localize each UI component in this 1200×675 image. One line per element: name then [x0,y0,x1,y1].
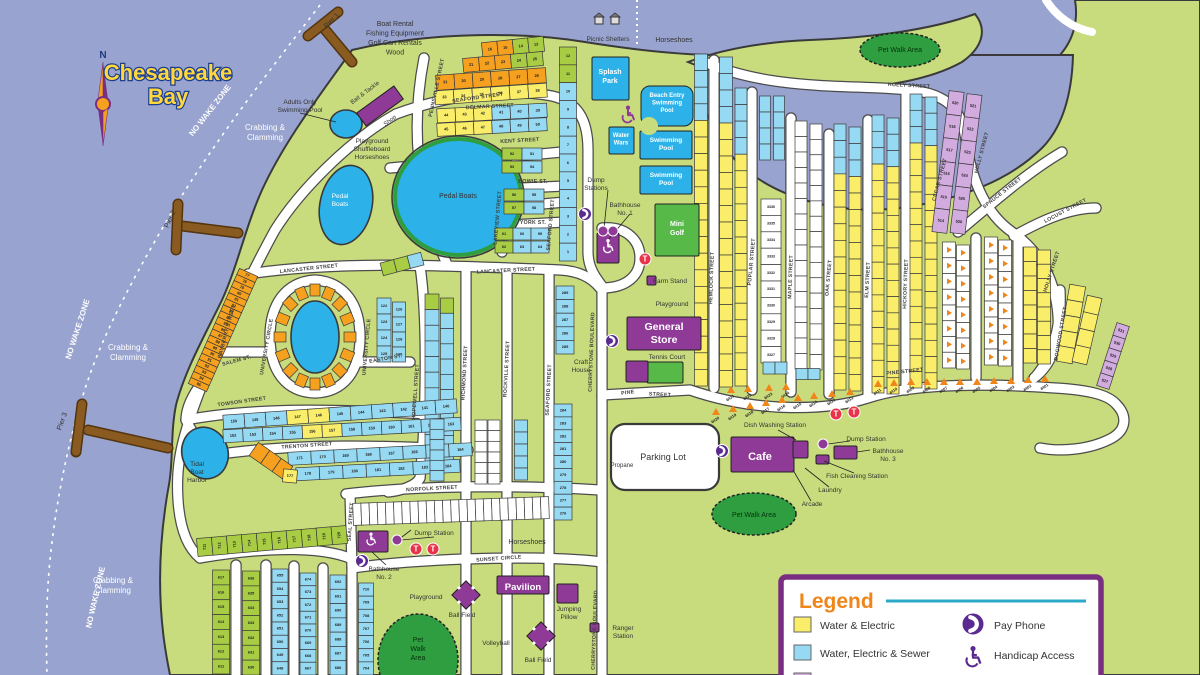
mini-golf: Mini [670,221,684,228]
site-number: 687 [335,651,342,656]
site-cell [810,216,822,231]
legend-item-label: Water & Electric [820,620,895,632]
site-cell [425,294,439,310]
site-cell [887,150,899,166]
legend: LegendWater & ElectricWater, Electric & … [781,577,1101,675]
site-cell [720,371,733,388]
site-number: 149 [252,417,260,422]
site-cell [735,88,747,105]
bathhouse-2: Bathhouse [368,566,399,573]
water-wars: Water [613,133,630,139]
site-number: 281 [560,446,567,451]
bathhouse-3-building [834,446,857,459]
playground-shuffleboard: Shuffleboard [354,146,391,153]
site-number: 652 [277,612,284,617]
site-cell [344,332,356,342]
site-cell [910,339,922,355]
site-cell [1024,305,1037,320]
site-cell [402,501,411,523]
site-cell [774,96,785,112]
site-cell [849,177,861,194]
site-cell [720,321,733,338]
site-cell [515,420,528,432]
dump-station-icon [392,535,402,545]
site-number: 40 [517,108,522,113]
site-number: 671 [305,615,312,620]
site-cell [720,57,733,74]
site-number: 277 [560,498,567,503]
site-cell [695,104,708,121]
site-cell [720,140,733,157]
site-number: 150 [230,418,237,423]
site-group: 289288287286285 [556,286,574,354]
site-number: 717 [291,536,297,543]
site-number: 673 [305,589,312,594]
site-cell [834,324,846,341]
site-group [834,124,846,390]
site-cell [925,357,937,373]
legend-title: Legend [799,590,874,613]
site-cell [887,248,899,264]
site-cell [735,287,747,304]
water-wars: Wars [614,141,629,147]
crabbing-1: Clamming [247,133,283,142]
site-number: 3330 [767,304,775,308]
site-cell [430,471,444,481]
site-cell [695,353,708,370]
site-number: 170 [319,454,326,459]
site-cell [735,369,747,386]
site-cell [310,378,320,390]
site-number: 3328 [767,336,775,340]
site-group: 5354 [502,161,542,173]
site-cell [887,215,899,231]
site-cell [910,208,922,224]
site-number: 282 [560,433,567,438]
site-number: 161 [408,423,416,428]
site-number: 184 [445,463,453,468]
swimming-pool-2: Pool [659,180,673,187]
mini-golf: Golf [670,230,685,237]
site-group: 626364 [495,241,549,253]
site-cell [695,170,708,187]
site-cell [441,344,454,359]
crabbing-3: Clamming [95,586,131,595]
site-cell [887,313,899,329]
site-cell [735,353,747,370]
site-cell [834,290,846,307]
site-number: 286 [562,331,569,336]
site-cell [925,259,937,275]
pet-walk-top: Pet Walk Area [878,47,922,54]
site-cell [849,342,861,359]
site-cell [849,144,861,161]
site-number: 284 [560,407,567,412]
site-cell [441,329,454,344]
site-number: 169 [342,453,350,458]
splash-park: Splash [599,69,622,76]
site-group [796,369,820,380]
site-cell [810,262,822,277]
site-cell [441,359,454,374]
site-cell [810,201,822,216]
site-cell [515,456,528,468]
site-cell [795,121,807,137]
site-cell [849,193,861,210]
site-cell [872,164,884,180]
street-label-street: STREET [649,391,672,398]
parking-lot: Parking Lot [640,452,686,462]
site-cell [810,247,822,262]
site-cell [910,176,922,192]
bathhouse-2-building [358,531,388,552]
site-number: 613 [218,634,225,639]
site-cell [426,501,435,523]
site-cell [1024,247,1037,262]
site-cell [849,358,861,375]
site-number: 50 [535,122,540,127]
site-cell [695,369,708,386]
site-cell [425,372,439,388]
site-number: 3332 [767,271,775,275]
site-cell [491,498,500,520]
site-number: 123 [381,319,388,324]
site-number: 668 [305,653,312,658]
site-group: 5758 [504,202,544,214]
jumping-pillow: Pillow [561,614,578,621]
site-cell [774,144,785,160]
bay-title: Chesapeake [104,60,232,85]
site-cell [925,340,937,356]
site-cell [385,502,394,524]
site-cell [810,155,822,170]
site-number: 3333 [767,254,775,258]
site-cell [720,74,733,91]
legend-swatch [794,645,811,660]
beach-entry-pool: Beach Entry [649,93,685,99]
site-cell [925,275,937,291]
site-group [957,245,970,369]
site-cell [695,137,708,154]
site-cell [695,54,708,71]
site-number: 160 [388,424,395,429]
site-number: 635 [248,590,255,595]
site-cell [1024,262,1037,277]
site-cell [795,245,807,261]
site-cell [887,167,899,183]
site-cell [834,141,846,158]
site-number: 690 [335,608,342,613]
site-cell [795,338,807,354]
pedal-boats-west: Boats [332,201,349,208]
site-cell [483,499,492,521]
site-number: 27 [516,74,521,79]
site-number: 704 [363,665,370,670]
site-cell [475,473,487,484]
dump-station-icon [818,439,828,449]
site-cell [760,144,771,160]
site-cell [695,286,708,303]
site-number: 710 [363,587,370,592]
ball-field-2: Ball Field [525,657,552,664]
site-cell [834,124,846,141]
site-cell [488,441,500,452]
site-cell [910,159,922,175]
site-cell [834,340,846,357]
site-cell [1038,321,1051,335]
site-number: 30 [461,78,466,83]
site-cell [430,440,444,450]
oval-pool [291,301,339,373]
site-cell [887,134,899,150]
site-cell [925,97,937,113]
site-number: 689 [335,622,342,627]
site-number: 126 [396,307,403,312]
site-cell [488,473,500,484]
site-number: 517 [946,147,953,153]
site-number: 164 [457,447,465,452]
site-number: 650 [277,639,284,644]
site-number: 57 [512,205,516,210]
playground-shuffleboard: Playground [356,138,389,145]
site-cell [925,292,937,308]
site-cell [887,264,899,280]
site-cell [925,113,937,129]
site-number: 672 [305,602,312,607]
site-cell [910,192,922,208]
site-number: 634 [248,605,255,610]
site-number: 168 [365,451,373,456]
site-cell [1038,250,1051,264]
site-cell [872,246,884,262]
site-cell [425,310,439,326]
site-cell [720,354,733,371]
site-cell [441,298,454,313]
site-number: 3334 [767,238,775,242]
site-group [872,115,884,393]
site-cell [925,129,937,145]
site-cell [872,115,884,131]
ranger-station: Station [613,633,634,640]
volleyball: Volleyball [482,640,510,647]
site-cell [910,323,922,339]
site-number: 148 [273,415,281,420]
site-number: 37 [517,89,522,94]
site-cell [849,127,861,144]
site-cell [872,328,884,344]
site-cell [451,500,460,522]
pet-walk-sw: Walk [410,646,426,653]
site-group [1024,247,1037,363]
site-cell [695,270,708,287]
site-group [735,88,747,386]
site-cell [795,137,807,153]
site-cell [834,257,846,274]
site-cell [720,255,733,272]
site-number: 183 [421,464,429,469]
site-cell [795,323,807,339]
site-group [763,362,787,374]
site-number: 166 [411,449,419,454]
site-number: 167 [388,450,395,455]
site-cell [735,303,747,320]
propane: Propane [611,463,634,469]
site-group: 122123124125 [377,298,391,362]
site-cell [887,297,899,313]
site-cell [369,503,378,525]
site-cell [1024,334,1037,349]
site-cell [430,419,444,429]
site-cell [810,339,822,354]
site-number: 708 [363,613,370,618]
site-number: 171 [296,455,304,460]
site-group [943,242,956,368]
site-cell [925,162,937,178]
site-cell [720,173,733,190]
site-cell [774,128,785,144]
site-group: 655654653652651650649648 [272,569,288,675]
phone-t-icon: T [852,408,857,417]
jumping-pillow: Jumping [557,606,582,613]
picnic-shelter-icon [595,17,603,24]
site-group: 674673672671670669668667 [300,573,316,675]
site-number: 648 [277,665,284,670]
legend-icon-label: Handicap Access [994,650,1075,662]
site-cell [441,374,454,389]
tidal-harbor: Tidal [190,461,204,468]
site-number: 691 [335,593,342,598]
site-cell [849,309,861,326]
site-cell [430,429,444,439]
site-number: 178 [304,471,312,476]
campground-map-screenshot: 1615141321222324253130292827263334353637… [0,0,1200,675]
site-cell [810,293,822,308]
site-cell [735,138,747,155]
site-number: 158 [349,426,357,431]
dish-washing: Dish Washing Station [744,422,806,429]
phone-t-icon: T [834,410,839,419]
site-cell [872,344,884,360]
pedal-boats-lake: Pedal Boats [439,193,477,200]
site-number: 616 [218,589,225,594]
arcade: Arcade [802,501,823,508]
pier-2 [176,204,178,250]
site-cell [760,128,771,144]
site-number: 632 [248,635,255,640]
site-cell [925,324,937,340]
laundry: Laundry [818,487,842,494]
site-number: 145 [337,411,345,416]
beach-entry-pool-notch [640,117,658,135]
site-number: 686 [335,665,342,670]
site-cell [872,148,884,164]
site-number: 649 [277,652,284,657]
site-cell [808,369,820,380]
site-number: 631 [248,650,255,655]
site-cell [720,239,733,256]
site-cell [720,189,733,206]
dump-station-cafe: Dump Station [846,436,886,443]
boat-rental: Wood [386,50,404,57]
tidal-harbor: Boat [190,469,204,476]
site-number: 670 [305,627,312,632]
site-cell [760,112,771,128]
swimming-pool-1: Pool [659,145,673,152]
site-cell [434,500,443,522]
swimming-pool-2: Swimming [650,172,683,179]
site-cell [475,452,487,463]
site-cell [834,157,846,174]
site-cell [795,276,807,292]
site-number: 152 [230,433,238,438]
site-cell [735,320,747,337]
dump-stations: Dump [587,177,605,184]
site-number: 60 [520,231,524,236]
site-cell [910,241,922,257]
site-cell [887,183,899,199]
site-number: 651 [277,626,284,631]
site-number: 7 [567,142,569,147]
site-cell [910,274,922,290]
site-cell [872,131,884,147]
site-cell [430,460,444,470]
site-cell [849,276,861,293]
site-number: 667 [305,666,312,671]
site-number: 705 [363,652,370,657]
adults-only-pool: Swimming Pool [278,107,323,114]
site-number: 147 [294,414,301,419]
general-store: Store [651,334,678,346]
site-number: 289 [562,290,569,295]
site-group [999,240,1012,366]
beach-entry-pool: Pool [661,108,674,114]
site-cell [475,499,484,521]
site-number: 179 [328,469,336,474]
site-number: 636 [248,575,255,580]
site-cell [795,152,807,168]
site-number: 612 [218,649,225,654]
site-cell [459,499,468,521]
site-cell [774,112,785,128]
site-number: 709 [363,600,370,605]
site-cell [735,237,747,254]
site-cell [795,168,807,184]
site-cell [695,154,708,171]
site-cell [910,94,922,110]
site-cell [310,284,320,296]
site-number: 3331 [767,287,775,291]
site-number: 707 [363,626,370,631]
site-cell [849,259,861,276]
site-number: 141 [421,405,429,410]
site-cell [735,204,747,221]
site-cell [1024,291,1037,306]
site-number: 611 [218,664,225,669]
crabbing-2: Clamming [110,353,146,362]
site-cell [720,206,733,223]
site-number: 653 [277,599,284,604]
site-cell [720,107,733,124]
site-number: 140 [443,403,450,408]
site-cell [720,272,733,289]
site-number: 280 [560,459,567,464]
craft-house: Craft [574,359,588,366]
site-number: 692 [335,579,342,584]
site-cell [810,309,822,324]
site-group [795,121,807,369]
site-cell [1038,336,1051,350]
general-store: General [644,321,683,333]
